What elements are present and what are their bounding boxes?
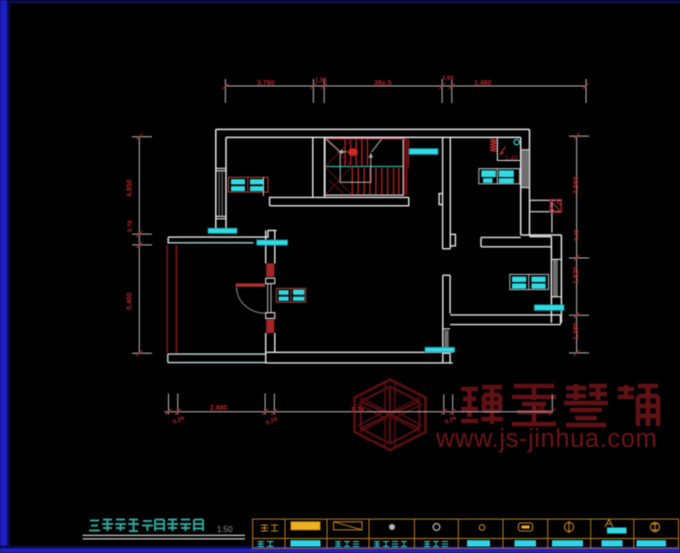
svg-text:4.850: 4.850: [127, 179, 134, 197]
svg-text:1.45: 1.45: [505, 155, 518, 162]
svg-text:38x.5: 38x.5: [374, 80, 392, 87]
svg-text:www.js-jinhua.com: www.js-jinhua.com: [435, 425, 657, 453]
svg-text:3.60: 3.60: [442, 76, 454, 82]
svg-text:1.05: 1.05: [533, 407, 545, 413]
svg-text:1.380: 1.380: [573, 322, 580, 340]
svg-text:1:50: 1:50: [217, 525, 233, 534]
svg-text:1.05: 1.05: [315, 78, 327, 84]
svg-text:0.78: 0.78: [128, 220, 134, 232]
svg-text:1.480: 1.480: [474, 80, 492, 87]
svg-text:2.7x: 2.7x: [351, 407, 365, 414]
svg-text:1.520: 1.520: [573, 266, 580, 284]
svg-text:0.45: 0.45: [575, 229, 581, 241]
svg-text:5.400: 5.400: [127, 292, 134, 310]
svg-text:2.880: 2.880: [210, 405, 228, 412]
svg-text:3.780: 3.780: [257, 80, 275, 87]
svg-text:3.560: 3.560: [573, 176, 580, 194]
